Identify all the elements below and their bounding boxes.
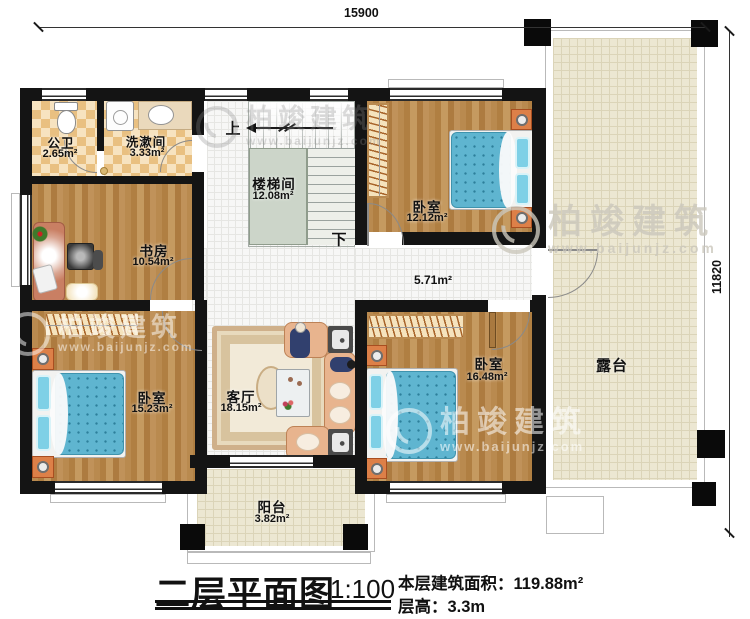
floor-area-line: 本层建筑面积：119.88m² [398,570,583,594]
balcony-step [187,552,371,564]
door-leaf [489,312,496,348]
bed-sheet [382,371,398,459]
room-area-bedroom-topright: 12.12m² [407,212,448,224]
column [692,482,716,506]
floor-height-line: 层高：3.3m [398,593,485,617]
room-area-balcony: 3.82m² [255,513,290,525]
window [20,195,32,285]
room-label-terrace: 露台 [596,355,628,376]
floor-mat [66,283,98,301]
title-underline [155,600,391,603]
toilet-bowl [57,110,76,134]
stairs-arrow-icon [246,123,256,133]
person-head [295,322,306,333]
nightstand [511,109,532,130]
dimension-value-top: 15900 [344,6,379,20]
stairs-direction-line [253,127,333,129]
room-area-washroom: 3.33m² [130,147,165,159]
nightstand [511,207,532,228]
floor-plan: 上 下 [0,0,750,619]
stairs-fade [249,102,354,150]
window [390,88,502,101]
window [55,481,162,494]
pillow [515,173,530,205]
floor-area-label: 本层建筑面积： [398,575,514,593]
room-label-bedroom-bottomright: 卧室 [475,353,504,373]
washing-machine-door [113,110,128,125]
stairs-up-label: 上 [225,118,240,139]
room-area-bedroom-bottomright: 16.48m² [467,371,508,383]
window [310,88,348,101]
pillow [36,375,51,411]
nightstand [366,345,387,366]
door-leaf [548,249,598,251]
wardrobe [44,312,140,337]
room-area-study: 10.54m² [133,256,174,268]
floor-height-value: 3.3m [448,598,486,616]
window [390,481,502,494]
wardrobe [367,314,465,339]
sofa-cushion [329,406,351,424]
nightstand [366,458,387,479]
nightstand [32,348,54,370]
room-area-bedroom-bottomleft: 15.23m² [132,403,173,415]
room-area-stairwell: 12.08m² [253,190,294,202]
pillow [36,415,51,451]
computer-monitor [67,243,94,270]
floor-drain [100,167,108,175]
bed-sheet [50,373,68,455]
dimension-value-right: 11820 [710,260,724,294]
column [343,524,368,550]
flower-vase [281,398,295,410]
terrace-step [546,496,604,534]
sink-basin [148,105,174,125]
pillow [515,137,530,169]
armchair-cushion [296,433,320,451]
dimension-line-right [729,32,730,537]
side-table [328,326,353,353]
balcony-sliding-door [230,455,313,468]
pillow [369,414,383,450]
column [697,430,725,458]
window-sill [386,494,506,503]
column [180,524,205,550]
terrace-door-opening [532,248,546,295]
window-sill [388,79,504,88]
side-table [328,429,353,456]
column [524,19,551,46]
window-sill [11,193,20,287]
teacup [288,377,293,382]
window [42,88,86,101]
plant [32,226,48,242]
title-underline [155,607,391,610]
sofa-cushion [329,382,351,400]
wardrobe [367,103,389,198]
room-area-bathroom: 2.65m² [43,148,78,160]
dimension-line-top [38,27,706,28]
teacup [297,381,302,386]
nightstand [32,456,54,478]
window-sill [50,494,166,503]
corridor-area: 5.71m² [414,273,452,287]
window [205,88,247,101]
floor-height-label: 层高： [398,598,448,616]
desk-chair [93,250,103,270]
door-leaf [367,203,369,246]
stairs-down-label: 下 [331,229,346,250]
floor-area-value: 119.88m² [514,575,584,593]
room-area-living: 18.15m² [221,402,262,414]
pillow [369,374,383,410]
